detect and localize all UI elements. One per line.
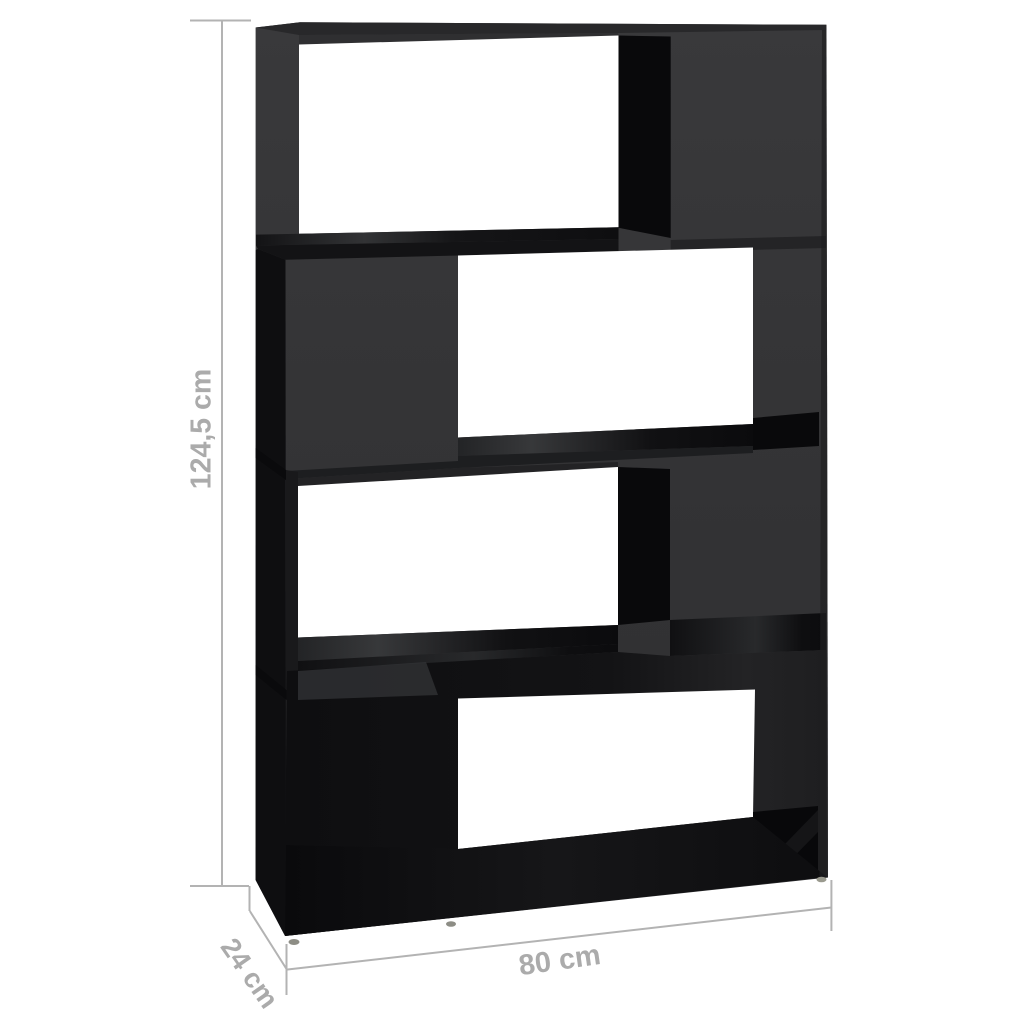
svg-text:124,5 cm: 124,5 cm bbox=[186, 369, 218, 489]
